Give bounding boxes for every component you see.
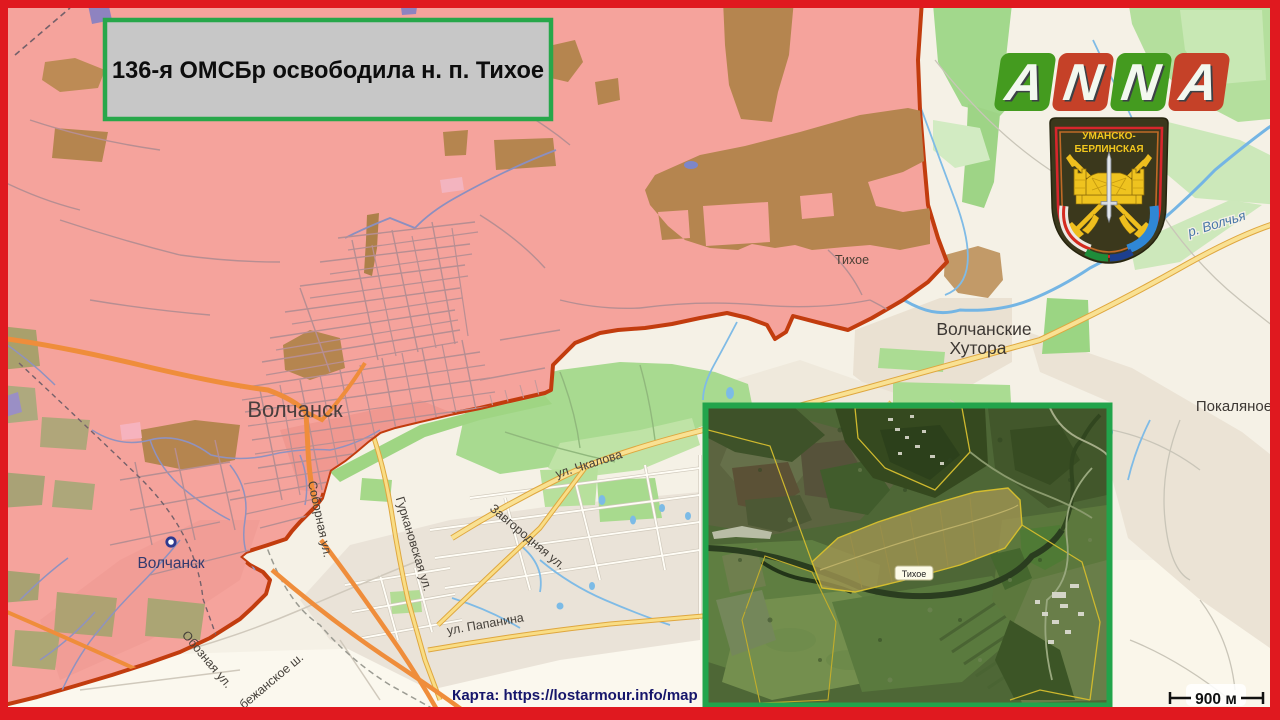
svg-text:Тихое: Тихое xyxy=(902,569,927,579)
svg-text:Волчанские: Волчанские xyxy=(936,319,1031,339)
svg-text:Хутора: Хутора xyxy=(949,338,1006,358)
svg-text:Волчанск: Волчанск xyxy=(247,397,343,422)
svg-text:136-я ОМСБр освободила н. п. Т: 136-я ОМСБр освободила н. п. Тихое xyxy=(112,58,544,84)
svg-text:Покаляное: Покаляное xyxy=(1196,398,1272,415)
svg-text:УМАНСКО-: УМАНСКО- xyxy=(1082,131,1135,142)
svg-text:Волчанск: Волчанск xyxy=(137,555,204,572)
svg-text:Карта: https://lostarmour.info: Карта: https://lostarmour.info/map xyxy=(452,687,698,704)
svg-text:900 м: 900 м xyxy=(1195,691,1237,708)
svg-text:Тихое: Тихое xyxy=(835,253,869,267)
